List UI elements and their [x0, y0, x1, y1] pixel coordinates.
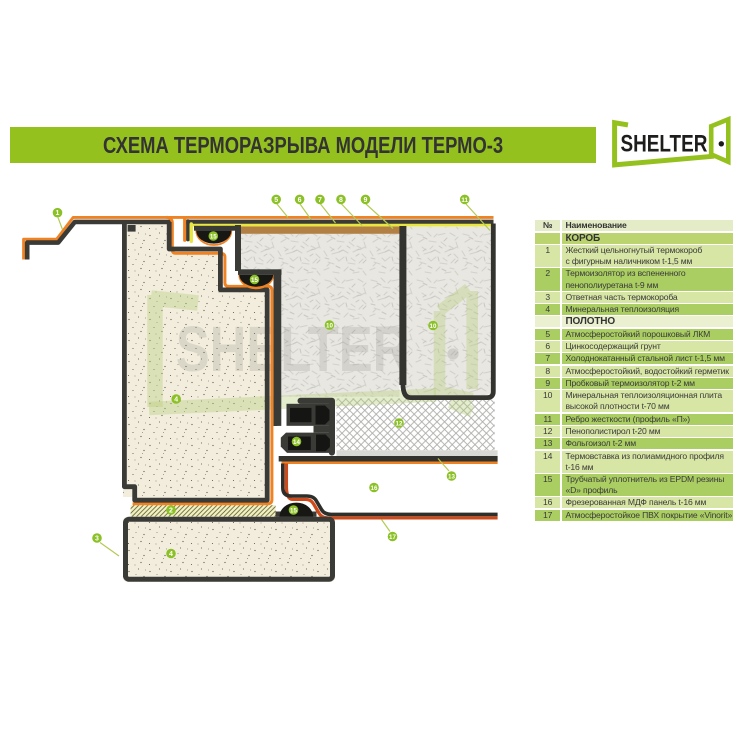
- svg-text:6: 6: [298, 197, 302, 204]
- svg-text:10: 10: [430, 323, 437, 330]
- svg-text:8: 8: [339, 197, 343, 204]
- svg-text:16: 16: [371, 485, 378, 492]
- svg-text:9: 9: [364, 197, 368, 204]
- svg-text:13: 13: [448, 473, 455, 480]
- svg-text:7: 7: [318, 197, 322, 204]
- svg-text:3: 3: [95, 535, 99, 542]
- svg-text:14: 14: [293, 439, 300, 446]
- svg-text:SHELTER: SHELTER: [176, 315, 410, 386]
- svg-text:1: 1: [56, 210, 60, 217]
- svg-text:4: 4: [174, 396, 178, 403]
- svg-text:4: 4: [169, 551, 173, 558]
- svg-text:10: 10: [326, 322, 333, 329]
- svg-text:11: 11: [461, 197, 468, 204]
- svg-text:15: 15: [210, 233, 217, 240]
- svg-text:17: 17: [389, 534, 396, 541]
- svg-text:15: 15: [290, 507, 297, 514]
- svg-text:15: 15: [251, 277, 258, 284]
- svg-text:2: 2: [169, 507, 173, 514]
- svg-text:5: 5: [274, 197, 278, 204]
- svg-text:12: 12: [396, 420, 403, 427]
